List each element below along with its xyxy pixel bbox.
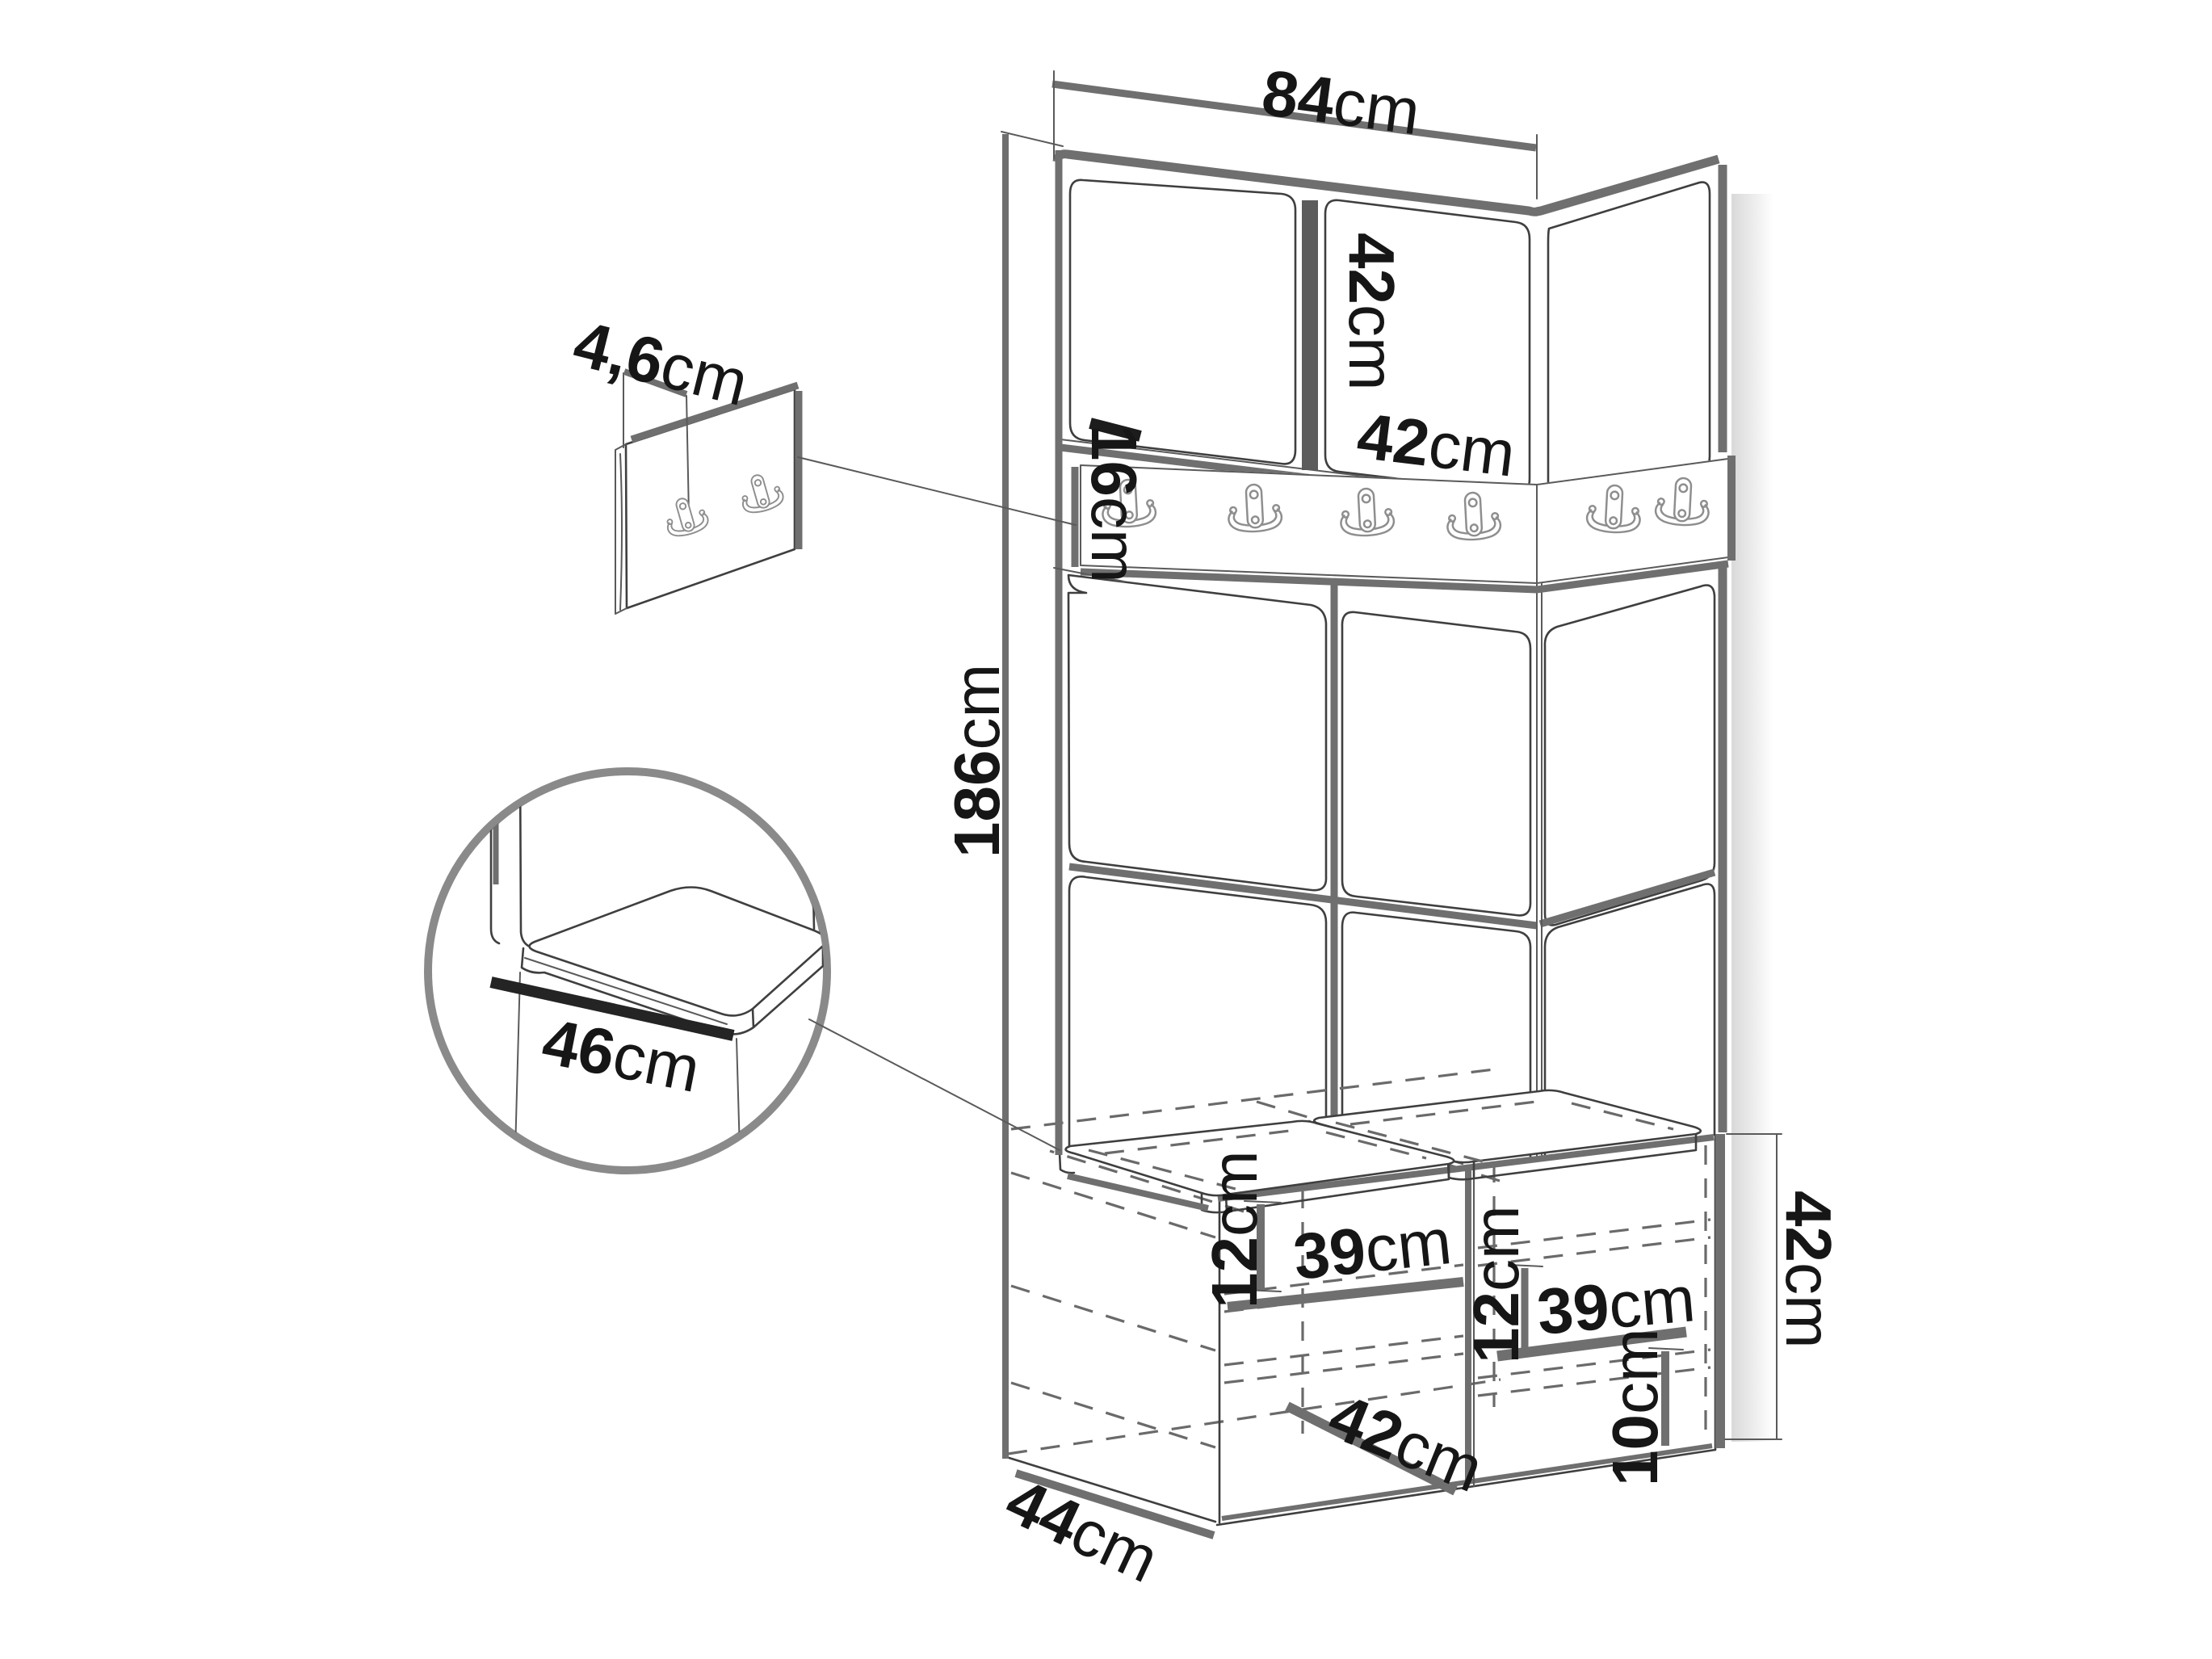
- svg-text:16cm: 16cm: [1078, 425, 1150, 583]
- svg-text:12cm: 12cm: [1198, 1150, 1270, 1308]
- svg-text:12cm: 12cm: [1460, 1205, 1532, 1363]
- svg-text:10cm: 10cm: [1599, 1328, 1671, 1486]
- svg-text:42cm: 42cm: [1336, 233, 1408, 391]
- svg-text:186cm: 186cm: [941, 664, 1013, 858]
- svg-text:42cm: 42cm: [1773, 1191, 1845, 1349]
